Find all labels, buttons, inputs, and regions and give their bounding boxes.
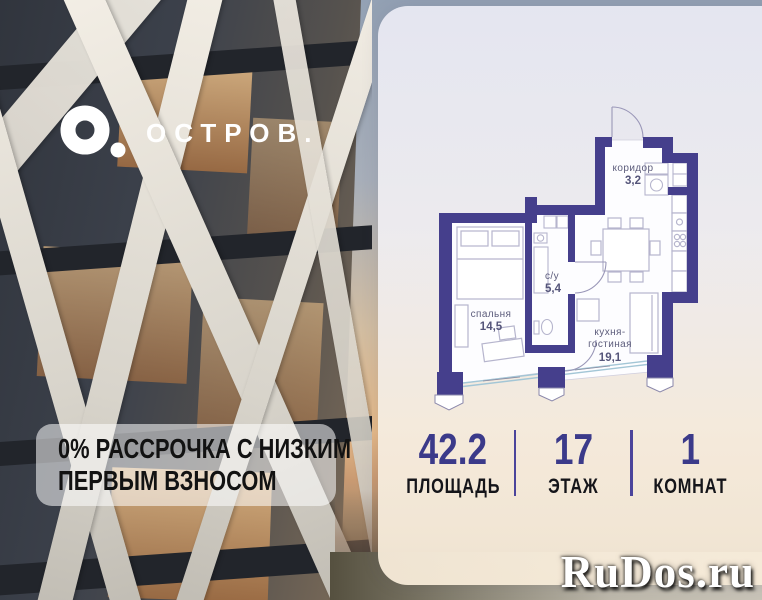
floor-label: ЭТАЖ [548, 475, 598, 499]
promo-line-2: ПЕРВЫМ ВЗНОСОМ [58, 465, 275, 497]
bedroom-area: 14,5 [480, 321, 503, 333]
rooms-label: КОМНАТ [653, 475, 727, 499]
brand-name: ОСТРОВ. [146, 118, 319, 149]
watermark: RuDos.ru [561, 546, 755, 598]
bathroom-area: 5,4 [545, 283, 562, 295]
ring-dot-icon [58, 104, 130, 162]
brand-logo: ОСТРОВ. [58, 104, 319, 162]
area-value: 42.2 [419, 428, 488, 472]
corridor-label: коридор [613, 163, 654, 174]
kitchen-label-2: гостиная [588, 339, 632, 350]
corridor-area: 3,2 [625, 175, 641, 187]
stat-floor: 17 ЭТАЖ [516, 428, 630, 499]
promo-banner: 0% РАССРОЧКА С НИЗКИМ ПЕРВЫМ ВЗНОСОМ [36, 424, 336, 506]
floor-plan-drawing: коридор 3,2 с/у 5,4 спальня 14,5 кухня- … [425, 95, 745, 425]
area-label: ПЛОЩАДЬ [406, 475, 500, 499]
promo-line-1: 0% РАССРОЧКА С НИЗКИМ [58, 433, 275, 465]
bedroom-label: спальня [471, 309, 512, 320]
stat-area: 42.2 ПЛОЩАДЬ [393, 428, 514, 499]
ad-card: ОСТРОВ. 0% РАССРОЧКА С НИЗКИМ ПЕРВЫМ ВЗН… [0, 0, 762, 600]
stat-rooms: 1 КОМНАТ [633, 428, 747, 499]
bathroom-label: с/у [545, 271, 559, 282]
rooms-value: 1 [680, 428, 700, 472]
kitchen-label-1: кухня- [594, 327, 625, 338]
floor-value: 17 [554, 428, 593, 472]
building-facade [0, 0, 372, 600]
floor-plan: коридор 3,2 с/у 5,4 спальня 14,5 кухня- … [425, 95, 745, 425]
kitchen-area: 19,1 [599, 352, 622, 364]
stats-row: 42.2 ПЛОЩАДЬ 17 ЭТАЖ 1 КОМНАТ [393, 424, 747, 502]
